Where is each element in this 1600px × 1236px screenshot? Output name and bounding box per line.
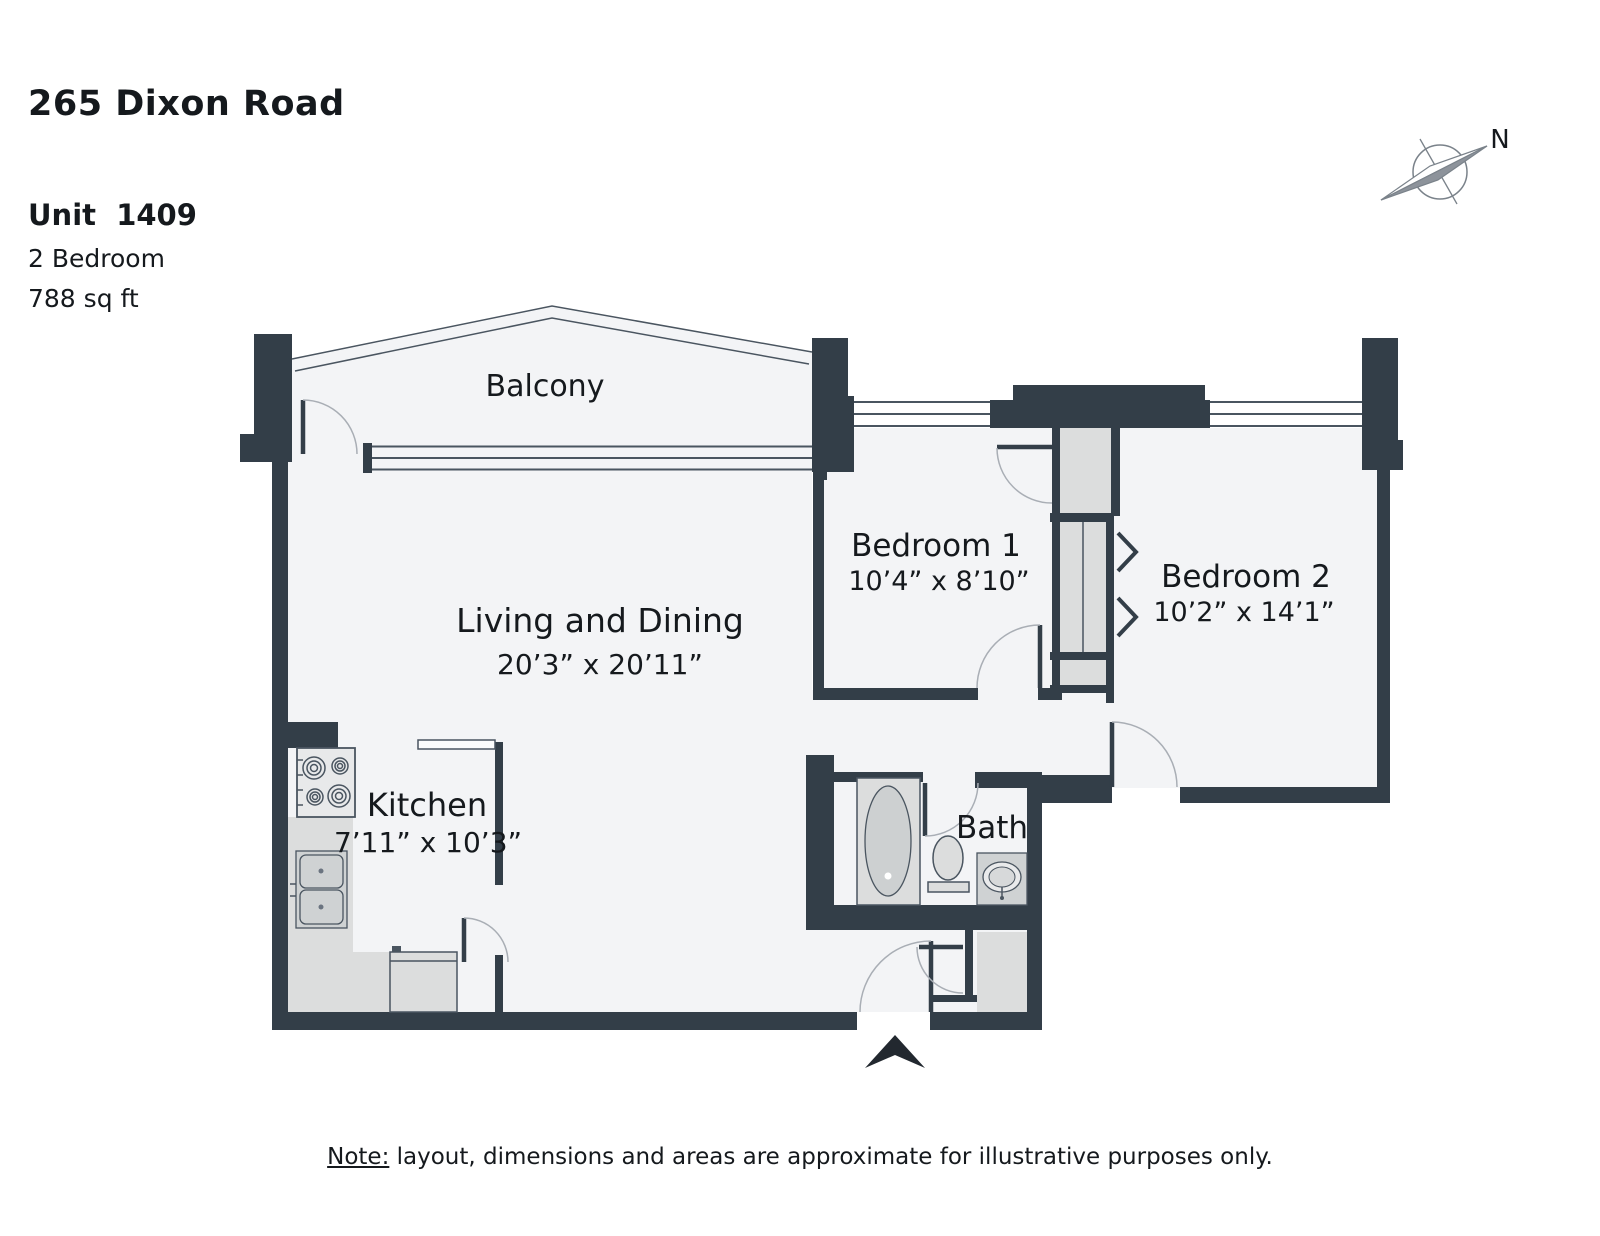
stove-icon	[297, 748, 355, 817]
room-label-balcony: Balcony	[486, 369, 605, 404]
closet-bottom-wall	[1050, 652, 1114, 660]
note-prefix: Note:	[327, 1144, 389, 1170]
living-floor	[288, 443, 812, 1012]
balcony-right-pillar	[812, 338, 848, 398]
entry-closet	[977, 932, 1027, 1012]
kitchen-east-wall	[495, 742, 503, 885]
compass-icon: N	[1381, 125, 1510, 204]
vanity-basin-inner	[989, 867, 1015, 887]
floorplan-page: 265 Dixon Road Unit 1409 2 Bedroom 788 s…	[0, 0, 1600, 1236]
balcony-right-pillar-base	[812, 396, 854, 472]
duct-chase	[1060, 428, 1111, 516]
entry-east-wall	[1027, 930, 1042, 1012]
chase-east-wall	[1111, 428, 1120, 516]
east-wall	[1377, 470, 1390, 793]
north-header-lower	[990, 400, 1210, 428]
bedroom1-west-wall	[813, 472, 824, 690]
bedroom2-south-wall	[1180, 787, 1390, 803]
sink-drain-bottom	[319, 905, 324, 910]
entry-arrow-icon	[865, 1035, 925, 1068]
bedroom1-south-wall	[813, 688, 978, 700]
closet-east-wall	[1106, 513, 1114, 703]
room-label-bedroom1: Bedroom 1	[851, 528, 1021, 564]
closet-base-wall	[1050, 685, 1114, 693]
bath-northeast-wall	[975, 772, 1042, 788]
room-dims-bedroom2: 10’2” x 14’1”	[1153, 597, 1334, 628]
north-label: N	[1490, 125, 1509, 155]
northeast-pillar-base	[1362, 440, 1403, 470]
slider-end-cap	[363, 443, 372, 473]
appliance-knob	[392, 946, 401, 952]
hall-south-wall	[1042, 775, 1112, 803]
bath-south-wall	[806, 905, 1042, 930]
closet-lower-shelf	[1058, 660, 1106, 685]
bedroom2-window	[1210, 402, 1362, 426]
note-text: Note: layout, dimensions and areas are a…	[0, 1144, 1600, 1170]
note-body: layout, dimensions and areas are approxi…	[389, 1144, 1273, 1170]
northeast-pillar	[1362, 338, 1398, 440]
vanity-faucet-base	[1000, 896, 1004, 900]
balcony-left-pillar	[254, 334, 292, 462]
room-label-bath: Bath	[956, 810, 1028, 846]
closet-top-wall	[1050, 513, 1112, 522]
sink-drain-top	[319, 869, 324, 874]
kitchen-peninsula-counter	[418, 740, 495, 749]
entry-closet-wall	[965, 930, 973, 1002]
left-pillar-foot	[240, 434, 254, 462]
bedroom1-window	[854, 402, 1013, 426]
south-wall-right	[930, 1012, 1042, 1030]
bathtub-drain	[885, 873, 892, 880]
room-label-living: Living and Dining	[456, 601, 744, 640]
entry-closet-sill	[930, 995, 977, 1002]
toilet-tank	[928, 882, 969, 892]
room-label-bedroom2: Bedroom 2	[1161, 559, 1331, 595]
room-dims-living: 20’3” x 20’11”	[497, 648, 703, 681]
room-label-kitchen: Kitchen	[367, 786, 487, 824]
kitchen-door-stub	[495, 955, 503, 1012]
floorplan-svg: N Balcony Living and Dining 20’3” x 20’1…	[0, 0, 1600, 1236]
compass-needle-dark	[1381, 146, 1487, 200]
bath-west-wall	[806, 755, 834, 930]
kitchen-corner-wall	[288, 722, 338, 748]
north-header-upper	[1013, 385, 1205, 400]
room-dims-kitchen: 7’11” x 10’3”	[334, 826, 522, 859]
south-wall-left	[272, 1012, 857, 1030]
room-dims-bedroom1: 10’4” x 8’10”	[848, 566, 1029, 597]
west-wall	[272, 460, 288, 1030]
